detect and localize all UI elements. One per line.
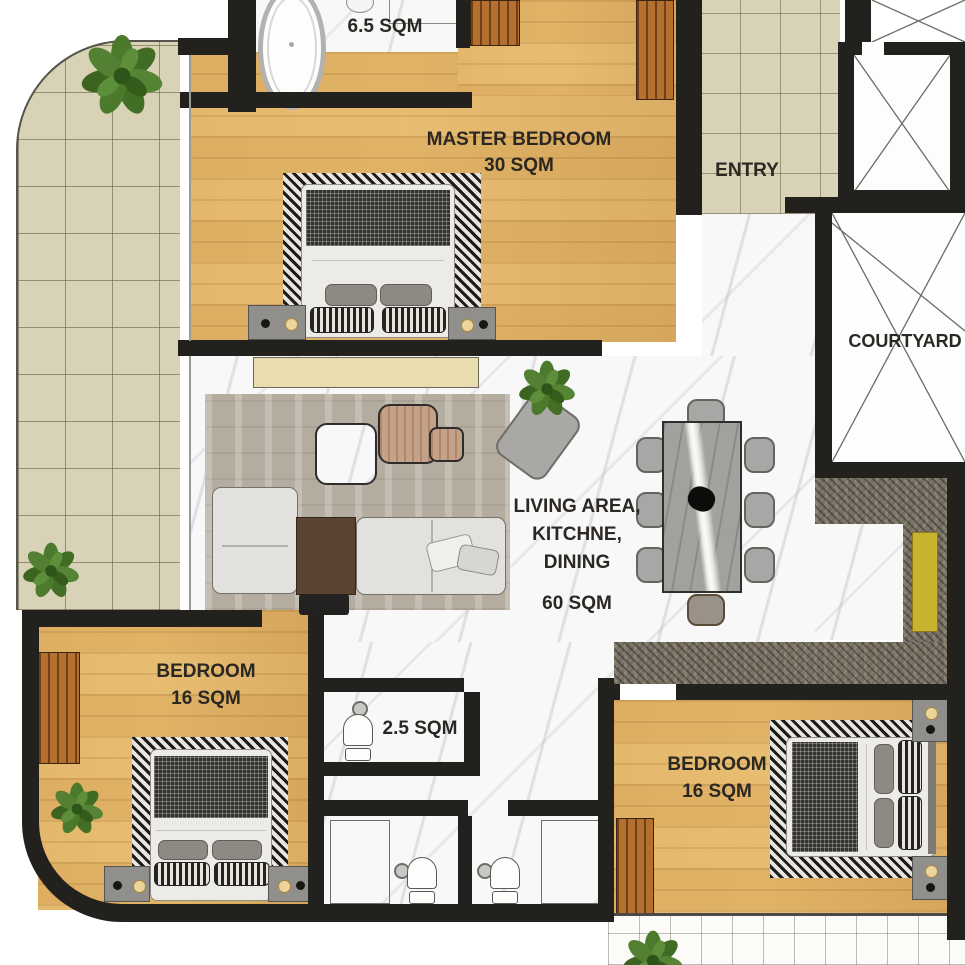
- bathtub-drain: [289, 42, 294, 47]
- wall-master-bottom: [178, 340, 602, 356]
- label-wc-area: 2.5 SQM: [365, 716, 475, 742]
- wall: [178, 38, 240, 55]
- bedroom-right-label: BEDROOM 16 SQM: [652, 751, 782, 805]
- label-courtyard: COURTYARD: [845, 328, 965, 354]
- living-label: LIVING AREA, KITCHNE, DINING: [497, 493, 657, 577]
- lamp-knob: [926, 883, 935, 892]
- wardrobe-master-right: [636, 0, 674, 100]
- label-bedroom-right-name: BEDROOM: [652, 751, 782, 778]
- label-living-line2: KITCHNE,: [497, 521, 657, 549]
- window-living-west: [189, 356, 191, 610]
- corner-x-icon: [872, 0, 965, 42]
- dining-chair: [744, 492, 775, 528]
- plant: [80, 34, 164, 118]
- nightstand-bedroom-right-a: [912, 698, 948, 742]
- lamp-knob: [479, 320, 488, 329]
- wardrobe-bedroom-right: [616, 818, 654, 914]
- lamp-icon: [285, 318, 298, 331]
- wall-baths-top: [308, 800, 468, 816]
- lamp-knob: [926, 725, 935, 734]
- kitchen-floor: [815, 524, 905, 640]
- wall-bedroom-right-top: [676, 684, 965, 700]
- lamp-icon: [925, 707, 938, 720]
- wall-curved-outer: [22, 610, 308, 922]
- plant: [22, 542, 80, 600]
- coffee-table-wood-small: [429, 427, 464, 462]
- wall-wc-bottom: [308, 762, 480, 776]
- plant: [622, 930, 684, 965]
- dining-chair: [744, 437, 775, 473]
- bedroom-right-headboard: [928, 740, 936, 854]
- tv-console: [253, 357, 479, 388]
- bedroom-right-pillow: [874, 744, 894, 794]
- wall-courtyard-left: [815, 213, 832, 478]
- label-master-bathroom-area: 6.5 SQM: [330, 14, 440, 40]
- bath-right-toilet-bowl: [490, 857, 520, 889]
- wall: [456, 0, 470, 48]
- label-living-line3: DINING: [497, 549, 657, 577]
- shower-left: [330, 820, 390, 904]
- plant: [50, 782, 104, 836]
- armchair-seam: [222, 545, 288, 547]
- label-living-area: 60 SQM: [497, 591, 657, 617]
- master-bedroom-label: MASTER BEDROOM 30 SQM: [404, 127, 634, 179]
- wall-elevator-bottom: [838, 190, 965, 206]
- coffee-table-marble: [315, 423, 377, 485]
- bedroom-right-pillow: [898, 796, 922, 850]
- bathtub-inner: [267, 0, 317, 100]
- wall-baths-divider: [458, 816, 472, 908]
- label-master-bedroom-area: 30 SQM: [404, 153, 634, 179]
- master-pillow: [382, 307, 446, 333]
- wall-baths-bottom: [308, 904, 614, 922]
- shower-right: [541, 820, 601, 904]
- terrace-left-floor: [16, 40, 180, 610]
- wall-wc-top: [324, 678, 464, 692]
- label-master-bedroom-name: MASTER BEDROOM: [404, 127, 634, 153]
- elevator-x-icon: [854, 55, 950, 192]
- plant: [518, 360, 576, 418]
- floor-plan: 6.5 SQM MASTER BEDROOM 30 SQM ENTRY COUR…: [0, 0, 965, 965]
- master-bed-blanket: [306, 190, 450, 246]
- nightstand-master-left: [248, 305, 306, 340]
- label-living-line1: LIVING AREA,: [497, 493, 657, 521]
- side-table-brown: [296, 517, 356, 595]
- bedroom-right-foldline: [866, 744, 867, 850]
- bedroom-right-pillow: [874, 798, 894, 848]
- wc-toilet-tank: [345, 748, 371, 761]
- label-bedroom-left-area: 16 SQM: [146, 685, 266, 712]
- wall-right-outer: [947, 462, 965, 940]
- bath-left-toilet-bowl: [407, 857, 437, 889]
- bedroom-right-blanket: [792, 742, 858, 852]
- bedroom-left-label: BEDROOM 16 SQM: [146, 658, 266, 712]
- lamp-icon: [461, 319, 474, 332]
- label-entry: ENTRY: [692, 158, 802, 184]
- wall: [845, 0, 871, 42]
- bath-right-toilet-tank: [492, 891, 518, 904]
- wall-kitchen-top: [815, 462, 965, 478]
- master-pillow: [310, 307, 374, 333]
- wall-elevator-right: [950, 42, 965, 206]
- kitchen-counter-yellow: [912, 532, 938, 632]
- wall-bedrooms-divider: [598, 678, 614, 922]
- wall-elevator-left: [838, 42, 854, 205]
- wall: [180, 92, 472, 108]
- master-pillow: [325, 284, 377, 306]
- nightstand-bedroom-right-b: [912, 856, 948, 900]
- bath-left-toilet-tank: [409, 891, 435, 904]
- dining-chair: [744, 547, 775, 583]
- wall-elevator-top: [838, 42, 862, 55]
- wardrobe-master-top: [470, 0, 520, 46]
- lamp-knob: [261, 319, 270, 328]
- nightstand-master-right: [448, 307, 496, 340]
- label-bedroom-right-area: 16 SQM: [652, 778, 782, 805]
- master-bed-foldline: [312, 260, 444, 261]
- kitchen-counter-top: [815, 478, 947, 524]
- window-master-west: [189, 55, 191, 341]
- wall-bedroom-right-top: [598, 684, 620, 700]
- window-bedroom-right-south: [614, 913, 947, 916]
- lamp-icon: [925, 865, 938, 878]
- master-pillow: [380, 284, 432, 306]
- label-bedroom-left-name: BEDROOM: [146, 658, 266, 685]
- armchair-left: [212, 487, 298, 594]
- dining-chair: [687, 594, 725, 626]
- kitchen-counter-bottom: [614, 642, 947, 684]
- bedroom-right-pillow: [898, 740, 922, 794]
